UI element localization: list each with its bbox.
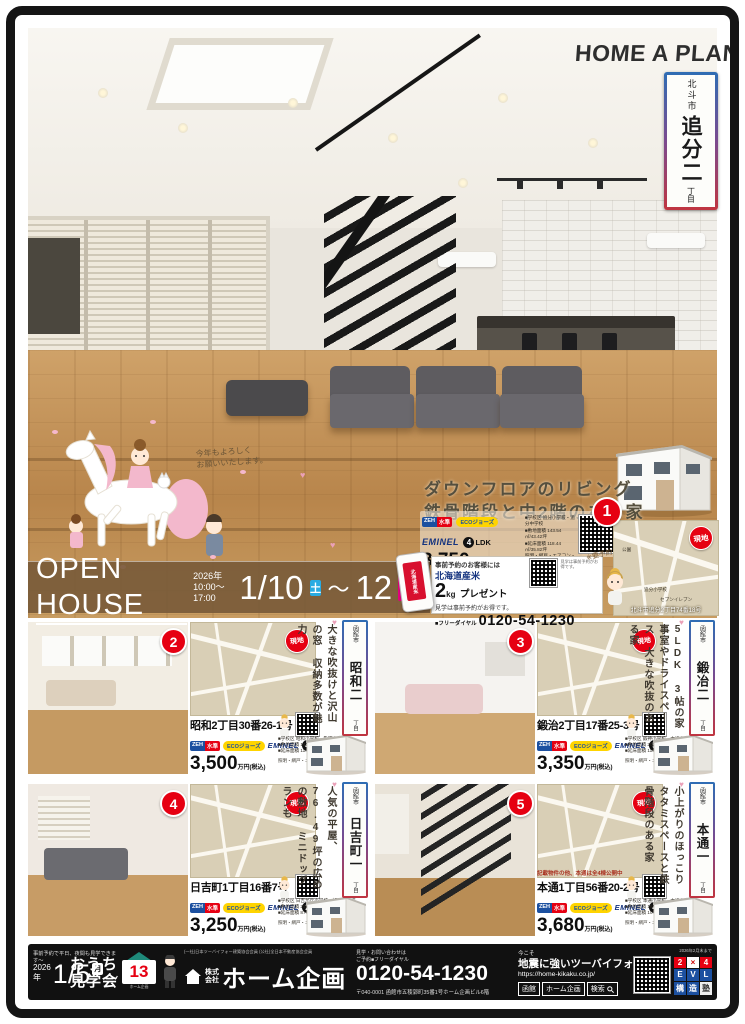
slogan: 地震に強いツーバイフォー <box>518 956 644 971</box>
eco-jozu-badge: ECOジョーズ <box>570 903 612 913</box>
property-catchphrase: 大きな吹抜けと沢山の窓 収納多数が魅力 <box>288 624 338 732</box>
hero-specs: ■学校区 追分小学校・追分中学校 ■敷地面積 143.54㎡/43.42坪 ■延… <box>525 513 576 555</box>
reservation-gift-box: 事前予約のお客様には 北海道産米 2kg プレゼント 見学は事前予約がお得です。… <box>431 556 603 614</box>
extra-note: 記載物件の他、本通は全4棟公開中 <box>537 869 623 877</box>
contact-block: 見学・お問い合わせはご予約■フリーダイヤル 0120-54-1230 〒040-… <box>356 946 514 998</box>
property-card-slot: 2 現地 昭和2丁目30番26-1号 ZEH水準 ECOジョーズ EMINEL <box>28 620 372 778</box>
url-link[interactable]: https://home-kikaku.co.jp/ <box>518 971 595 978</box>
property-number-badge: 2 <box>160 628 187 655</box>
district-banner: 函館市 昭和二 丁目 <box>342 620 368 736</box>
qr-code[interactable] <box>530 559 557 587</box>
mascot-woman <box>600 566 630 608</box>
two-by-four-badge: 2×4EVL構造塾 <box>674 957 712 995</box>
company-name: ホーム企画 <box>222 959 346 994</box>
zeh-badge: ZEH水準 <box>537 903 567 913</box>
ldk-count: 4LDK <box>463 537 490 548</box>
search-icon <box>607 986 614 993</box>
site-badge: 現地 <box>687 524 714 551</box>
price: 3,680万円(税込) <box>537 915 613 937</box>
property-card-slot: 5 現地 記載物件の他、本通は全4棟公開中 本通1丁目56番20-2号 ZEH水… <box>375 782 719 940</box>
fine-print: 見学は事前予約がお得です。 <box>560 559 599 612</box>
property-card: 3 現地 鍛治2丁目17番25-3号 ZEH水準 ECOジョーズ EMINEL <box>375 620 719 778</box>
hero-property-info: ZEH水準 ECOジョーズ EMINEL 4LDK 3,750万円(税込) ■学… <box>420 511 618 557</box>
property-catchphrase: 5LDK 3帖の家事室やドライスペース 大きな吹抜のある家 <box>635 624 685 732</box>
zeh-badge: ZEH水準 <box>422 517 452 527</box>
property-photo: 3 <box>375 622 535 774</box>
end-date: 12 <box>355 569 392 607</box>
property-card-slot: 3 現地 鍛治2丁目17番25-3号 ZEH水準 ECOジョーズ EMINEL <box>375 620 719 778</box>
open-house-banner: OPEN HOUSE 2026年10:00～17:00 1/10 土 ～ 12 … <box>28 561 430 613</box>
footer-bar: 事前予約で平日、夜間も見学できます～ 2026年 1/5 月 ～ おうち見学会 … <box>28 944 717 1000</box>
property-catchphrase: 小上がりのほっこりタタミスペースと鉄骨階段のある家 <box>635 786 685 894</box>
company-address: 〒040-0001 函館市五稜郭町35番1号ホーム企画ビル6階 <box>356 988 489 996</box>
property-address: 日吉町1丁目16番7号 <box>190 879 288 895</box>
property-card: 4 現地 日吉町1丁目16番7号 ZEH水準 ECOジョーズ EMINEL <box>28 782 372 940</box>
price: 3,350万円(税込) <box>537 753 613 775</box>
eco-jozu-badge: ECOジョーズ <box>456 517 498 527</box>
district-banner: 函館市 日吉町一 丁目 <box>342 782 368 898</box>
property-photo: 2 <box>28 622 188 774</box>
property-number-badge: 1 <box>592 497 622 527</box>
price: 3,250万円(税込) <box>190 915 266 937</box>
eco-jozu-badge: ECOジョーズ <box>223 741 265 751</box>
eco-jozu-badge: ECOジョーズ <box>223 903 265 913</box>
new-year-horse-illustration <box>36 414 236 564</box>
property-card: 2 現地 昭和2丁目30番26-1号 ZEH水準 ECOジョーズ EMINEL <box>28 620 372 778</box>
zeh-badge: ZEH水準 <box>190 741 220 751</box>
event-date-block: 事前予約で平日、夜間も見学できます～ 2026年 1/5 月 ～ おうち見学会 <box>33 946 118 998</box>
saturday-badge: 土 <box>310 580 322 596</box>
flyer-page: HOME A PLAN 北斗市 追分二 丁目 今年もよろしくお願いいたします。 <box>0 0 745 1024</box>
zeh-badge: ZEH水準 <box>190 903 220 913</box>
property-number-badge: 4 <box>160 790 187 817</box>
brand-logo: HOME A PLAN <box>574 40 741 67</box>
district-banner: 函館市 鍛冶二 丁目 <box>689 620 715 736</box>
event-name: おうち見学会 <box>70 956 118 990</box>
slogan-block: 今こそ 地震に強いツーバイフォー https://home-kikaku.co.… <box>518 946 628 998</box>
mascot-boy <box>160 955 180 989</box>
property-card: 5 現地 記載物件の他、本通は全4棟公開中 本通1丁目56番20-2号 ZEH水… <box>375 782 719 940</box>
eminel-logo: EMINEL <box>422 537 459 547</box>
open-house-title: OPEN HOUSE <box>36 551 187 625</box>
eco-jozu-badge: ECOジョーズ <box>570 741 612 751</box>
ottoman <box>226 380 308 416</box>
air-conditioner <box>647 233 705 248</box>
skylight <box>146 38 333 110</box>
price: 3,500万円(税込) <box>190 753 266 775</box>
district-name: 追分二 <box>676 115 706 184</box>
company-house-icon <box>184 968 202 986</box>
phone-number[interactable]: 0120-54-1230 <box>479 613 575 629</box>
property-number-badge: 3 <box>507 628 534 655</box>
property-photo: 4 <box>28 784 188 936</box>
district-chome: 丁目 <box>686 187 697 203</box>
anniversary-13-logo: 13 ホーム企画 <box>122 952 156 992</box>
property-card-slot: 4 現地 日吉町1丁目16番7号 ZEH水準 ECOジョーズ EMINEL <box>28 782 372 940</box>
property-catchphrase: 人気の平屋、76.49坪の広めの敷地 ミニドッグランも <box>288 786 338 894</box>
dark-window <box>28 238 80 334</box>
property-number-badge: 5 <box>507 790 534 817</box>
qr-code[interactable] <box>634 957 670 993</box>
company-block: (一社)日本ツーバイフォー建築協会会員 (公社)全日本不動産協会会員 株式会社 … <box>184 946 352 998</box>
hero-district-banner: 北斗市 追分二 丁目 <box>664 72 718 210</box>
property-photo: 5 <box>375 784 535 936</box>
footer-qr-zone: 2026年2月末まで 2×4EVL構造塾 <box>632 946 712 998</box>
district-banner: 函館市 本通一 丁目 <box>689 782 715 898</box>
track-light <box>497 178 647 181</box>
phone-number[interactable]: 0120-54-1230 <box>356 962 488 986</box>
start-date: 1/10 <box>239 569 303 607</box>
search-box[interactable]: 函館 ホーム企画 検索 <box>518 982 618 996</box>
gray-sofa <box>330 366 586 430</box>
district-city: 北斗市 <box>685 79 698 112</box>
zeh-badge: ZEH水準 <box>537 741 567 751</box>
